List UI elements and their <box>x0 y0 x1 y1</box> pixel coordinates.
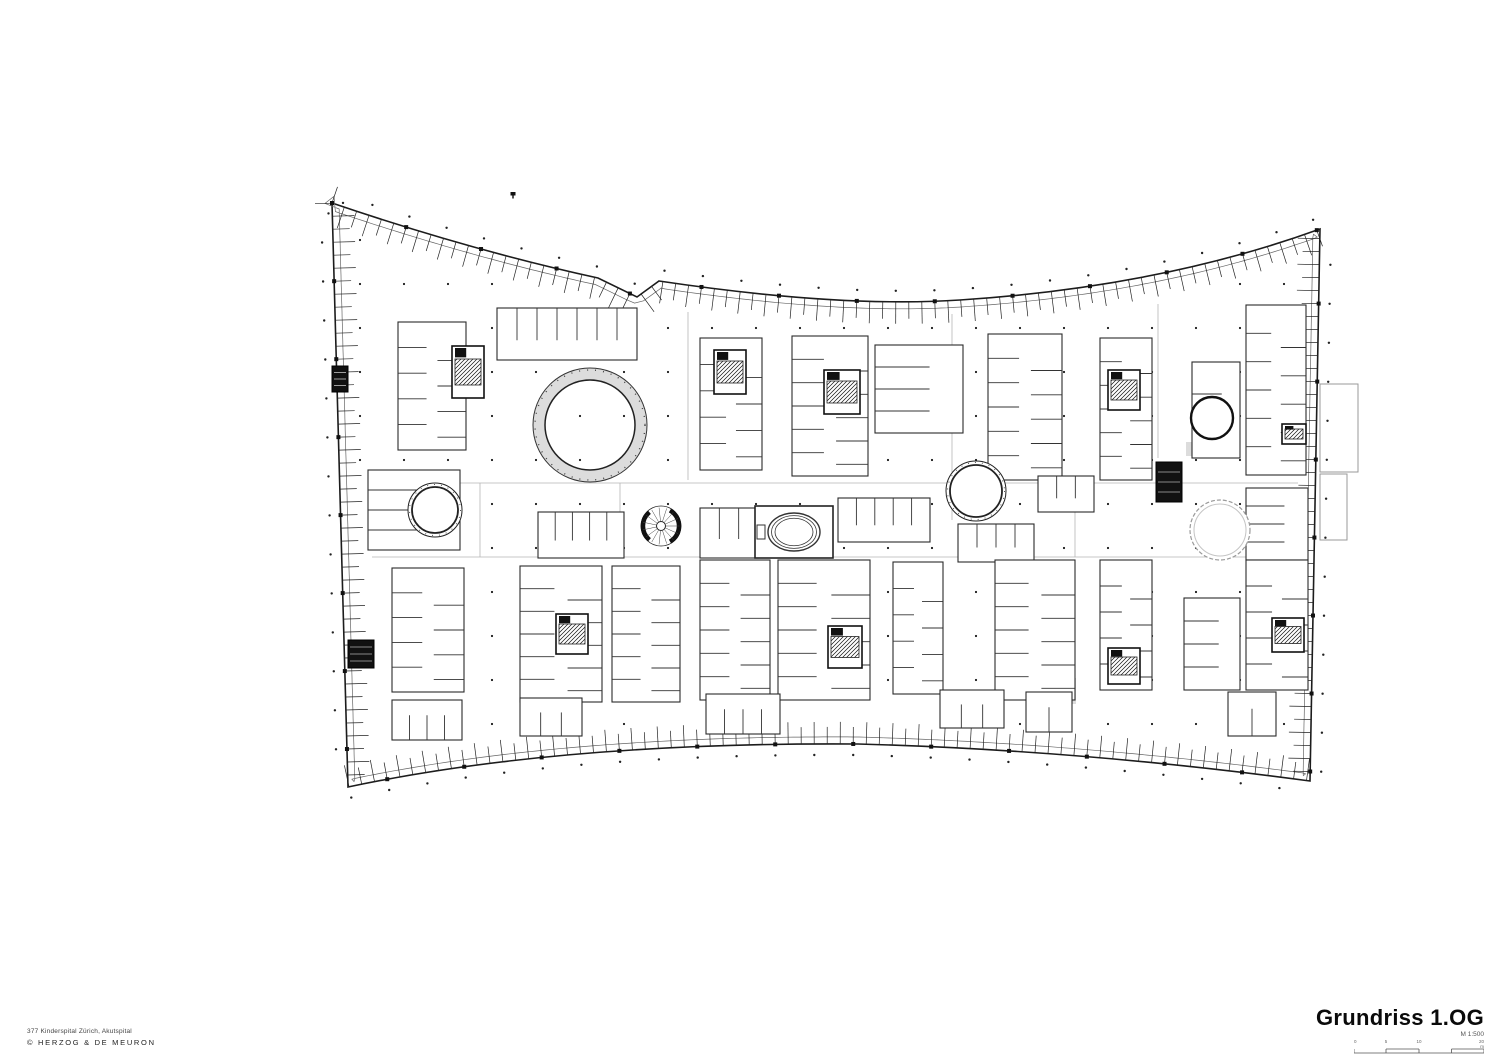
room-block <box>700 508 758 558</box>
void-east <box>1190 500 1250 560</box>
scale-bar: 0 5 10 20 m <box>1354 1043 1484 1055</box>
drawing-scale: M 1:500 <box>1316 1031 1484 1038</box>
drawing-title: Grundriss 1.OG <box>1316 1006 1484 1029</box>
room-block <box>1246 488 1308 560</box>
room-block <box>893 562 943 694</box>
room-block <box>940 690 1004 728</box>
room-block <box>700 560 770 700</box>
room-block <box>958 524 1034 562</box>
annex-boxes <box>1320 384 1358 540</box>
room-block <box>838 498 930 542</box>
courtyard-west <box>408 483 462 537</box>
spiral-stair <box>641 506 681 546</box>
courtyard-east-small <box>1191 397 1233 439</box>
scale-bar-label: 10 <box>1416 1039 1421 1044</box>
project-credit: 377 Kinderspital Zürich, Akutspital <box>27 1028 156 1035</box>
room-block <box>706 694 780 734</box>
room-block <box>538 512 624 558</box>
room-block <box>1246 305 1306 475</box>
scale-bar-label: 0 <box>1354 1039 1357 1044</box>
courtyard-center <box>946 461 1006 521</box>
room-block <box>1026 692 1072 732</box>
room-block <box>392 700 462 740</box>
floor-plan-svg <box>0 0 1512 1055</box>
room-block <box>612 566 680 702</box>
room-block <box>1184 598 1240 690</box>
room-block <box>497 308 637 360</box>
credits-block: 377 Kinderspital Zürich, Akutspital © HE… <box>27 1028 156 1047</box>
room-block <box>988 334 1062 480</box>
firm-credit: © HERZOG & DE MEURON <box>27 1038 156 1047</box>
scale-bar-graphic <box>1354 1043 1484 1055</box>
oval-room <box>755 506 833 558</box>
scale-bar-label: 5 <box>1385 1039 1388 1044</box>
room-block <box>520 698 582 736</box>
room-block <box>392 568 464 692</box>
drawing-sheet: 377 Kinderspital Zürich, Akutspital © HE… <box>0 0 1512 1055</box>
title-block: Grundriss 1.OG M 1:500 0 5 10 20 m <box>1316 1006 1484 1055</box>
room-block <box>1038 476 1094 512</box>
reference-marker <box>511 192 516 199</box>
scale-bar-label: 20 m <box>1479 1039 1484 1049</box>
room-block <box>875 345 963 433</box>
room-block <box>995 560 1075 700</box>
room-block <box>1228 692 1276 736</box>
